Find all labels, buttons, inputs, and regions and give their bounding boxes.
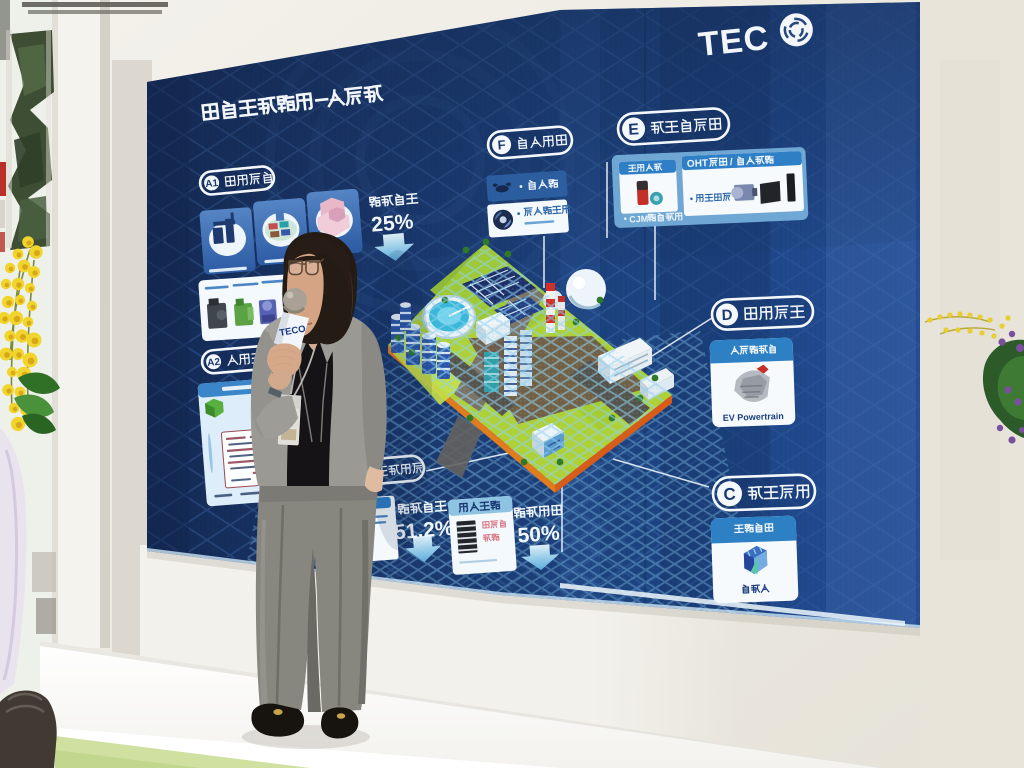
svg-text:E: E [628, 121, 640, 139]
svg-text:TEC: TEC [696, 19, 771, 64]
svg-text:CJM: CJM [629, 214, 648, 225]
svg-text:25%: 25% [370, 210, 414, 237]
svg-text:A1: A1 [205, 178, 219, 190]
svg-text:OHT: OHT [687, 158, 709, 170]
svg-text:C: C [723, 485, 736, 504]
svg-text:A2: A2 [207, 357, 221, 369]
svg-text:EV Powertrain: EV Powertrain [723, 411, 784, 423]
svg-text:D: D [721, 307, 733, 324]
svg-text:F: F [497, 137, 506, 153]
svg-text:50%: 50% [517, 522, 561, 548]
